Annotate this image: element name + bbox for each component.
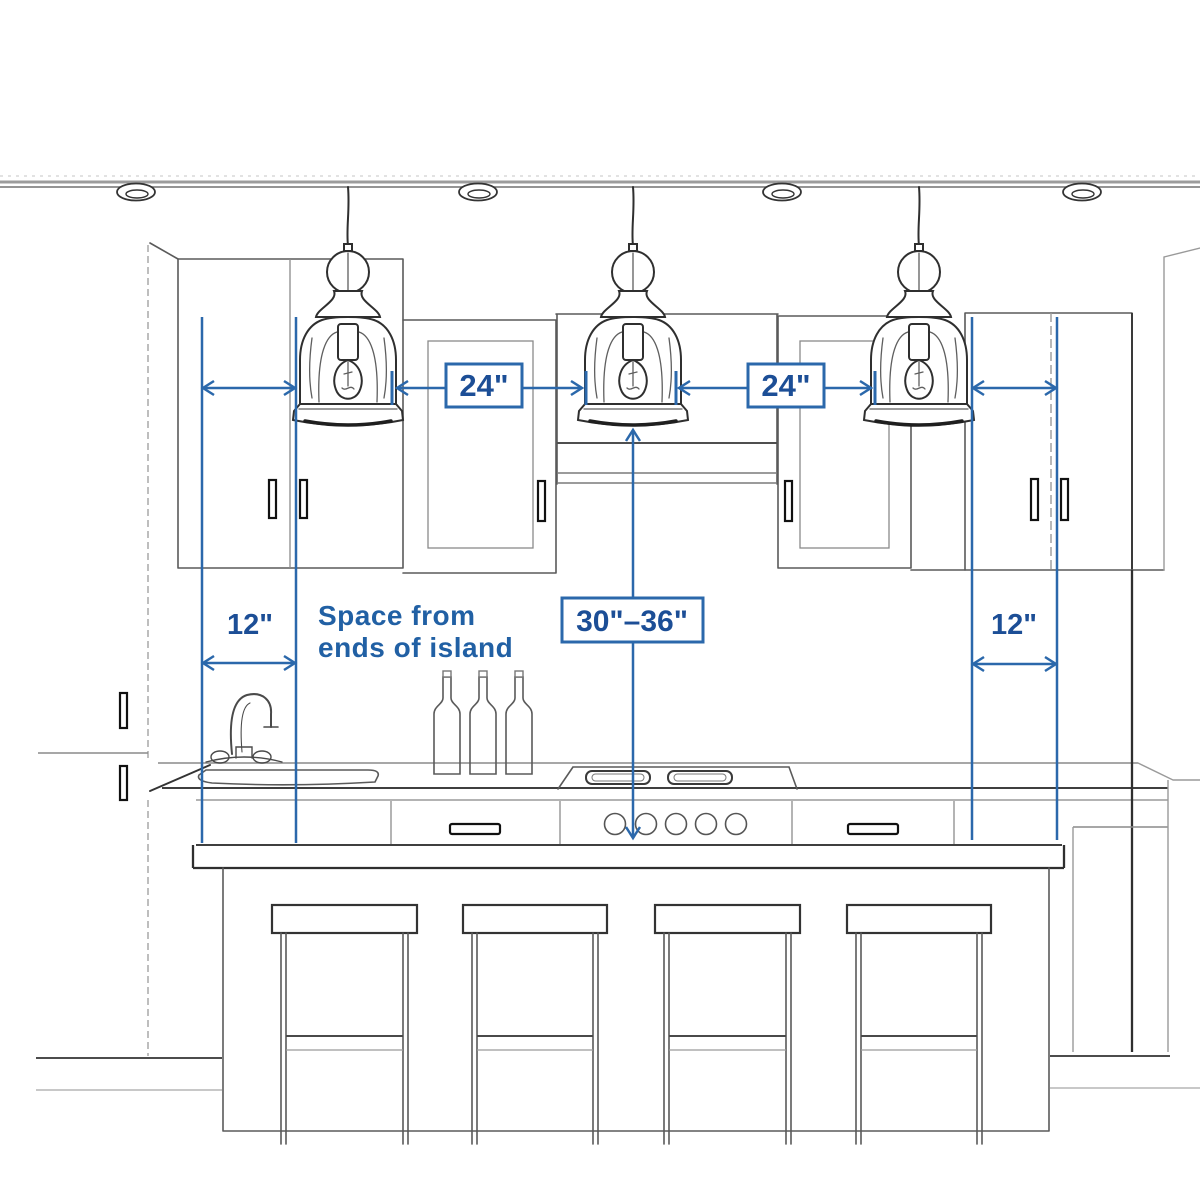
base-cabinets-left — [36, 693, 222, 1090]
pendant-light-right — [864, 187, 974, 426]
recessed-light-icon — [763, 184, 801, 201]
recessed-light-icon — [459, 184, 497, 201]
upper-cabinet-mid-left — [403, 320, 556, 573]
island-note-line1: Space from — [318, 600, 476, 631]
cabinet-handle — [120, 693, 127, 728]
counter-apron — [196, 801, 1062, 845]
cabinet-handle — [300, 480, 307, 518]
cabinet-handle — [785, 481, 792, 521]
wall-corner-right — [1164, 248, 1200, 570]
pendant-lights — [293, 187, 974, 426]
bar-stool — [463, 905, 607, 1144]
hang-height-label: 30"–36" — [576, 605, 688, 638]
bar-stool — [655, 905, 800, 1144]
end-offset-right-label: 12" — [991, 609, 1037, 641]
upper-cabinets — [148, 243, 1200, 760]
counter-right-end — [1138, 763, 1200, 780]
end-offset-dimension-right — [973, 657, 1056, 671]
recessed-light-icon — [117, 184, 155, 201]
cabinet-handle — [1061, 479, 1068, 520]
wine-bottles — [434, 671, 532, 774]
cooktop-knobs — [605, 814, 747, 835]
cabinet-handle — [120, 766, 127, 800]
drawer-pull — [450, 824, 500, 834]
island — [193, 845, 1064, 1131]
recessed-light-icon — [1063, 184, 1101, 201]
base-cabinets-right — [1050, 570, 1200, 1088]
cabinet-handle — [269, 480, 276, 518]
pendant-light-center — [578, 187, 688, 426]
spacing-right-label: 24" — [761, 368, 810, 403]
pendant-light-left — [293, 187, 403, 426]
diagram-canvas: 24" 24" 30"–36" 12" 12" Space from ends … — [0, 0, 1200, 1200]
cooktop — [558, 767, 797, 789]
sink — [199, 770, 379, 785]
cabinet-handle — [538, 481, 545, 521]
faucet — [206, 694, 282, 763]
end-offset-left-label: 12" — [227, 609, 273, 641]
island-note-line2: ends of island — [318, 632, 513, 663]
cabinet-handle — [1031, 479, 1038, 520]
ceiling — [0, 176, 1200, 201]
kitchen-pendant-spacing-diagram: 24" 24" 30"–36" 12" 12" Space from ends … — [0, 0, 1200, 1200]
bar-stool — [847, 905, 991, 1144]
end-offset-dimension-left — [203, 656, 295, 670]
counter — [150, 671, 1200, 845]
spacing-left-label: 24" — [459, 368, 508, 403]
wall-corner-left — [150, 243, 178, 259]
drawer-pull — [848, 824, 898, 834]
bar-stool — [272, 905, 417, 1144]
bar-stools — [272, 905, 991, 1144]
